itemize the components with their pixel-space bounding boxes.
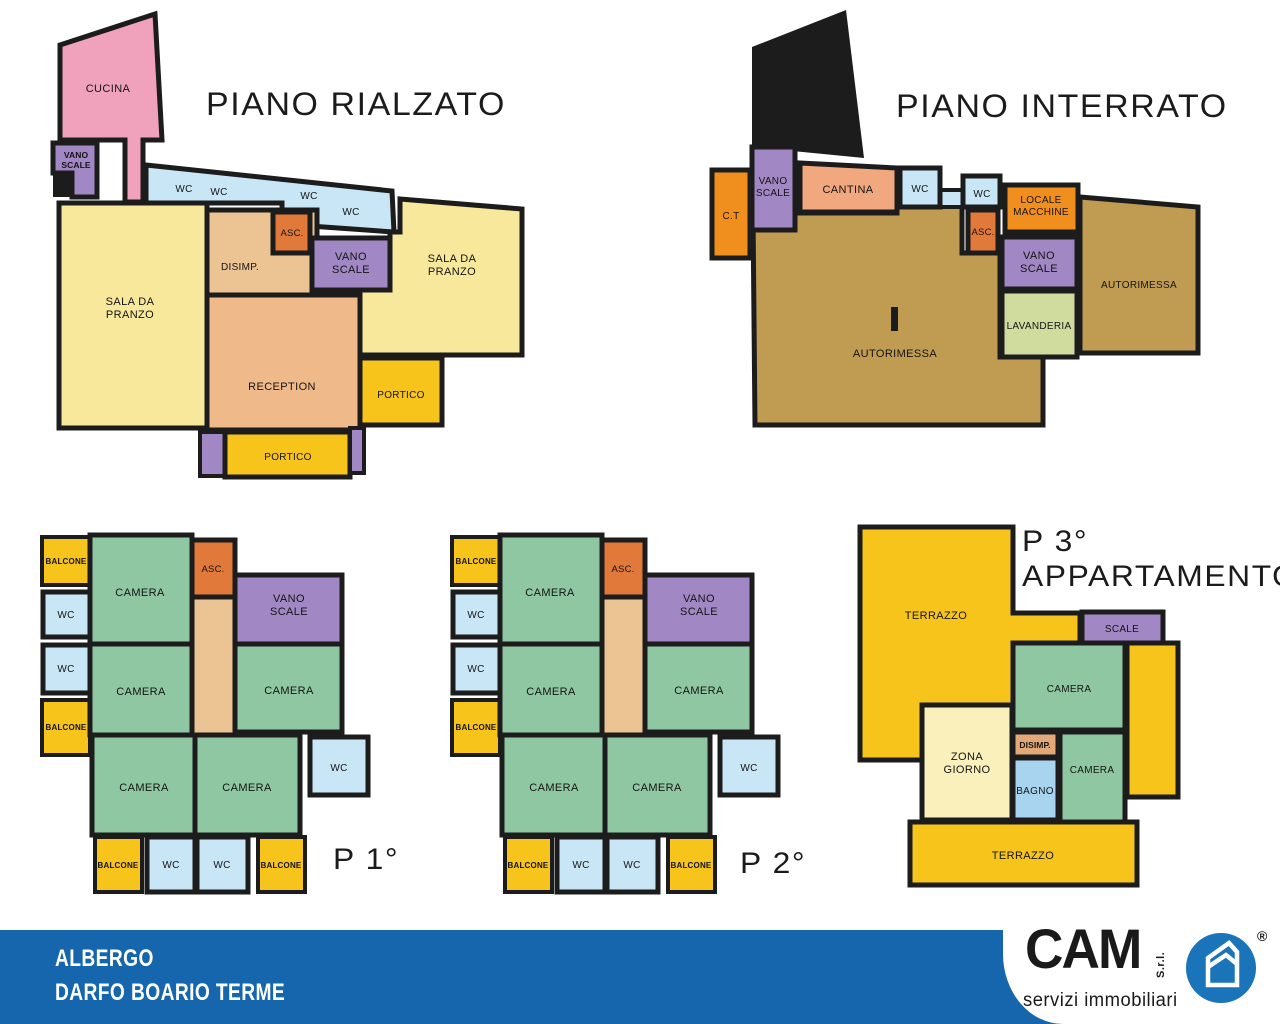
wc-connector (940, 190, 963, 207)
floor-plan-piano-interrato: C.T VANOSCALE CANTINA WC WC LOCALEMACCHI… (700, 5, 1240, 460)
room-label-camera-tl: CAMERA (115, 587, 165, 599)
room-label-balcone-b2: BALCONE (261, 861, 302, 870)
room-label-camera-bl: CAMERA (529, 782, 579, 794)
room-label-asc: ASC. (281, 228, 304, 239)
room-label-cucina: CUCINA (86, 83, 131, 95)
cam-logo-house-icon (1186, 933, 1256, 1003)
room-autorimessa-dx (1080, 197, 1198, 353)
room-label-camera-bl: CAMERA (119, 782, 169, 794)
room-label-asc: ASC. (612, 564, 635, 575)
room-label-wc-l2: WC (467, 664, 484, 675)
door-marker (891, 307, 898, 331)
room-label-bagno: BAGNO (1016, 786, 1054, 797)
room-label-wc-r: WC (740, 763, 757, 774)
room-label-lavanderia: LAVANDERIA (1007, 321, 1072, 332)
room-label-vano-scale: VANOSCALE (270, 593, 308, 618)
room-label-wc-b1: WC (162, 860, 179, 871)
floor-plan-p1: BALCONE WC WC BALCONE CAMERA ASC. VANOSC… (30, 520, 450, 920)
room-label-cantina: CANTINA (822, 184, 873, 196)
cam-logo-srl: S.r.l. (1155, 952, 1167, 978)
room-label-asc: ASC. (202, 564, 225, 575)
wall-block (53, 173, 72, 197)
room-label-camera-ml: CAMERA (116, 686, 166, 698)
room-label-wc1: WC (175, 184, 192, 195)
room-label-autorimessa-dx: AUTORIMESSA (1101, 280, 1177, 291)
room-label-disimp: DISIMP. (221, 262, 259, 273)
footer-bar: ALBERGO DARFO BOARIO TERME CAM S.r.l. ® … (0, 930, 1280, 1024)
room-label-wc-b2: WC (623, 860, 640, 871)
room-label-balcone-l: BALCONE (456, 723, 497, 732)
room-label-wc-b2: WC (213, 860, 230, 871)
room-label-vano-scale: VANOSCALE (332, 251, 370, 276)
property-line1: ALBERGO (55, 942, 285, 976)
room-label-sala-sx: SALA DAPRANZO (106, 296, 155, 321)
room-camera-sud (1060, 732, 1125, 822)
strip-purple-dx (350, 428, 364, 473)
floor-plan-p2: BALCONE WC WC BALCONE CAMERA ASC. VANOSC… (440, 520, 860, 920)
room-label-vano-scale-upper: VANOSCALE (756, 176, 790, 199)
room-label-wc3: WC (300, 191, 317, 202)
room-label-camera-br: CAMERA (632, 782, 682, 794)
room-label-camera-br: CAMERA (222, 782, 272, 794)
room-label-portico-sud: PORTICO (264, 452, 311, 463)
room-label-portico-dx: PORTICO (377, 390, 424, 401)
room-label-balcone-b1: BALCONE (98, 861, 139, 870)
cam-logo-text: CAM (1025, 916, 1140, 981)
cam-logo-tagline: servizi immobiliari (1023, 990, 1178, 1012)
property-line2: DARFO BOARIO TERME (55, 976, 285, 1010)
page: PIANO RIALZATO CUCINA VANOSCALE WC WC WC… (0, 0, 1280, 1024)
room-label-balcone-b1: BALCONE (508, 861, 549, 870)
room-label-camera-mr: CAMERA (674, 685, 724, 697)
room-label-terrazzo-nord: TERRAZZO (905, 610, 968, 622)
room-label-wc2: WC (973, 189, 990, 200)
room-label-wc-b1: WC (572, 860, 589, 871)
room-label-wc2: WC (210, 187, 227, 198)
room-label-camera-tl: CAMERA (525, 587, 575, 599)
room-label-vano-scale: VANOSCALE (680, 593, 718, 618)
terrazzo-dx-block (1127, 643, 1178, 797)
room-label-camera-ml: CAMERA (526, 686, 576, 698)
room-label-balcone-tl: BALCONE (456, 557, 497, 566)
room-label-wc1: WC (911, 184, 928, 195)
room-label-wc-l1: WC (467, 610, 484, 621)
room-label-sala-dx: SALA DAPRANZO (428, 253, 477, 278)
room-label-autorimessa-main: AUTORIMESSA (853, 348, 938, 360)
room-label-balcone-l: BALCONE (46, 723, 87, 732)
room-corridor (192, 597, 235, 745)
room-label-disimp: DISIMP. (1019, 740, 1050, 750)
room-label-asc: ASC. (972, 227, 995, 238)
strip-purple-sx (200, 432, 225, 476)
room-corridor (602, 597, 645, 745)
room-label-vano-scale-upper: VANOSCALE (61, 150, 91, 170)
room-reception (207, 295, 360, 430)
floor-plan-p3: TERRAZZO SCALE CAMERA ZONAGIORNO DISIMP.… (845, 515, 1280, 920)
room-label-balcone-b2: BALCONE (671, 861, 712, 870)
room-label-balcone-tl: BALCONE (46, 557, 87, 566)
room-label-camera-mr: CAMERA (264, 685, 314, 697)
floor-plan-piano-rialzato: CUCINA VANOSCALE WC WC WC WC SALA DAPRAN… (40, 5, 540, 480)
black-wedge (752, 10, 864, 158)
room-label-wc-r: WC (330, 763, 347, 774)
room-label-scale: SCALE (1105, 624, 1139, 635)
room-label-locale-macchine: LOCALEMACCHINE (1013, 195, 1069, 218)
room-label-wc-l1: WC (57, 610, 74, 621)
room-label-vano-scale: VANOSCALE (1020, 250, 1058, 275)
registered-trademark-symbol: ® (1257, 928, 1267, 944)
room-label-ct: C.T (722, 211, 739, 222)
cam-logo-panel: CAM S.r.l. ® servizi immobiliari (1003, 930, 1280, 1024)
room-label-camera-sud: CAMERA (1070, 765, 1115, 776)
property-title: ALBERGO DARFO BOARIO TERME (55, 942, 285, 1010)
room-label-wc-l2: WC (57, 664, 74, 675)
room-label-terrazzo-sud: TERRAZZO (992, 850, 1055, 862)
room-label-reception: RECEPTION (248, 381, 316, 393)
room-label-wc4: WC (342, 207, 359, 218)
room-label-camera-nord: CAMERA (1047, 684, 1092, 695)
house-icon (1186, 933, 1256, 1003)
